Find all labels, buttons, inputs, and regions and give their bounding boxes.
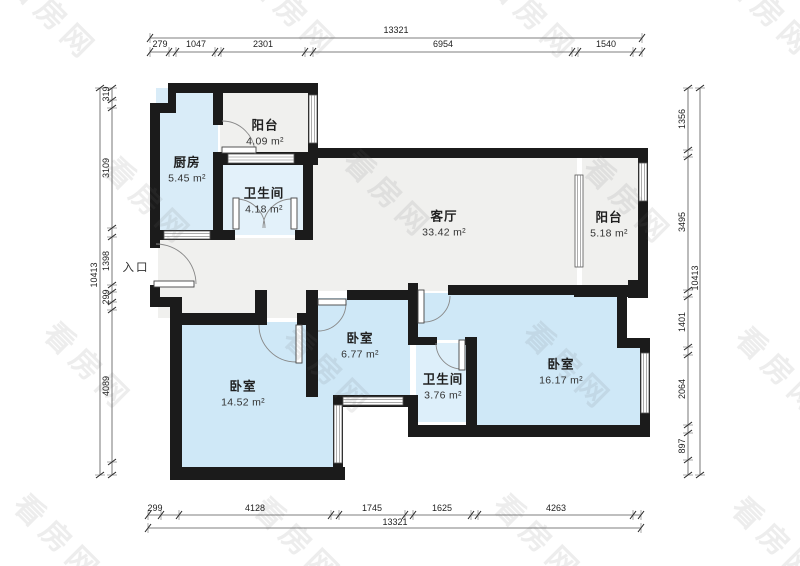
room-name: 卧室 — [221, 376, 265, 395]
dim-bottom-seg: 1745 — [362, 503, 382, 513]
room-name: 卫生间 — [244, 183, 285, 202]
dim-right-seg: 1401 — [677, 312, 687, 332]
room-fills — [156, 88, 643, 470]
dim-left-seg: 299 — [101, 289, 111, 304]
room-area: 3.76 m² — [423, 390, 464, 402]
dim-left-seg: 319 — [101, 86, 111, 101]
dim-left-seg: 4089 — [101, 376, 111, 396]
floorplan-canvas: 看房网 看房网 看房网 看房网 看房网 看房网 看房网 看房网 看房网 看房网 … — [0, 0, 800, 566]
dim-top-total: 13321 — [383, 25, 408, 35]
room-label-bathroom-1: 卫生间 4.18 m² — [244, 183, 285, 216]
dim-bottom-seg: 299 — [147, 503, 162, 513]
room-area: 5.18 m² — [590, 228, 628, 240]
dim-left-seg: 3109 — [101, 158, 111, 178]
room-name: 阳台 — [246, 115, 284, 134]
room-area: 5.45 m² — [168, 173, 206, 185]
room-label-bedroom-right: 卧室 16.17 m² — [539, 354, 583, 387]
dim-right-total: 10413 — [690, 265, 700, 290]
dim-right-seg: 2064 — [677, 379, 687, 399]
room-name: 卧室 — [341, 328, 379, 347]
room-label-kitchen: 厨房 5.45 m² — [168, 152, 206, 185]
room-name: 客厅 — [422, 206, 466, 225]
room-name: 厨房 — [168, 152, 206, 171]
dim-top-seg: 1047 — [186, 39, 206, 49]
room-label-bathroom-2: 卫生间 3.76 m² — [423, 369, 464, 402]
room-area: 6.77 m² — [341, 349, 379, 361]
room-label-balcony-top: 阳台 4.09 m² — [246, 115, 284, 148]
dim-right-seg: 1356 — [677, 109, 687, 129]
dim-right-seg: 897 — [677, 438, 687, 453]
room-area: 4.09 m² — [246, 136, 284, 148]
floorplan-drawing — [0, 0, 800, 566]
dim-top-seg: 2301 — [253, 39, 273, 49]
dim-bottom-seg: 1625 — [432, 503, 452, 513]
dim-top-seg: 1540 — [596, 39, 616, 49]
room-area: 33.42 m² — [422, 227, 466, 239]
dim-left-total: 10413 — [89, 262, 99, 287]
room-area: 16.17 m² — [539, 375, 583, 387]
dim-top-seg: 279 — [152, 39, 167, 49]
room-area: 4.18 m² — [244, 204, 285, 216]
dim-bottom-total: 13321 — [382, 517, 407, 527]
room-label-bedroom-mid: 卧室 6.77 m² — [341, 328, 379, 361]
dim-left-seg: 1398 — [101, 251, 111, 271]
room-name: 阳台 — [590, 207, 628, 226]
room-label-living: 客厅 33.42 m² — [422, 206, 466, 239]
room-name: 卫生间 — [423, 369, 464, 388]
dim-bottom-seg: 4263 — [546, 503, 566, 513]
room-name: 卧室 — [539, 354, 583, 373]
room-area: 14.52 m² — [221, 397, 265, 409]
entry-label: 入口 — [123, 259, 150, 275]
room-label-balcony-right: 阳台 5.18 m² — [590, 207, 628, 240]
dim-bottom-seg: 4128 — [245, 503, 265, 513]
dim-right-seg: 3495 — [677, 212, 687, 232]
room-label-bedroom-left: 卧室 14.52 m² — [221, 376, 265, 409]
dim-top-seg: 6954 — [433, 39, 453, 49]
